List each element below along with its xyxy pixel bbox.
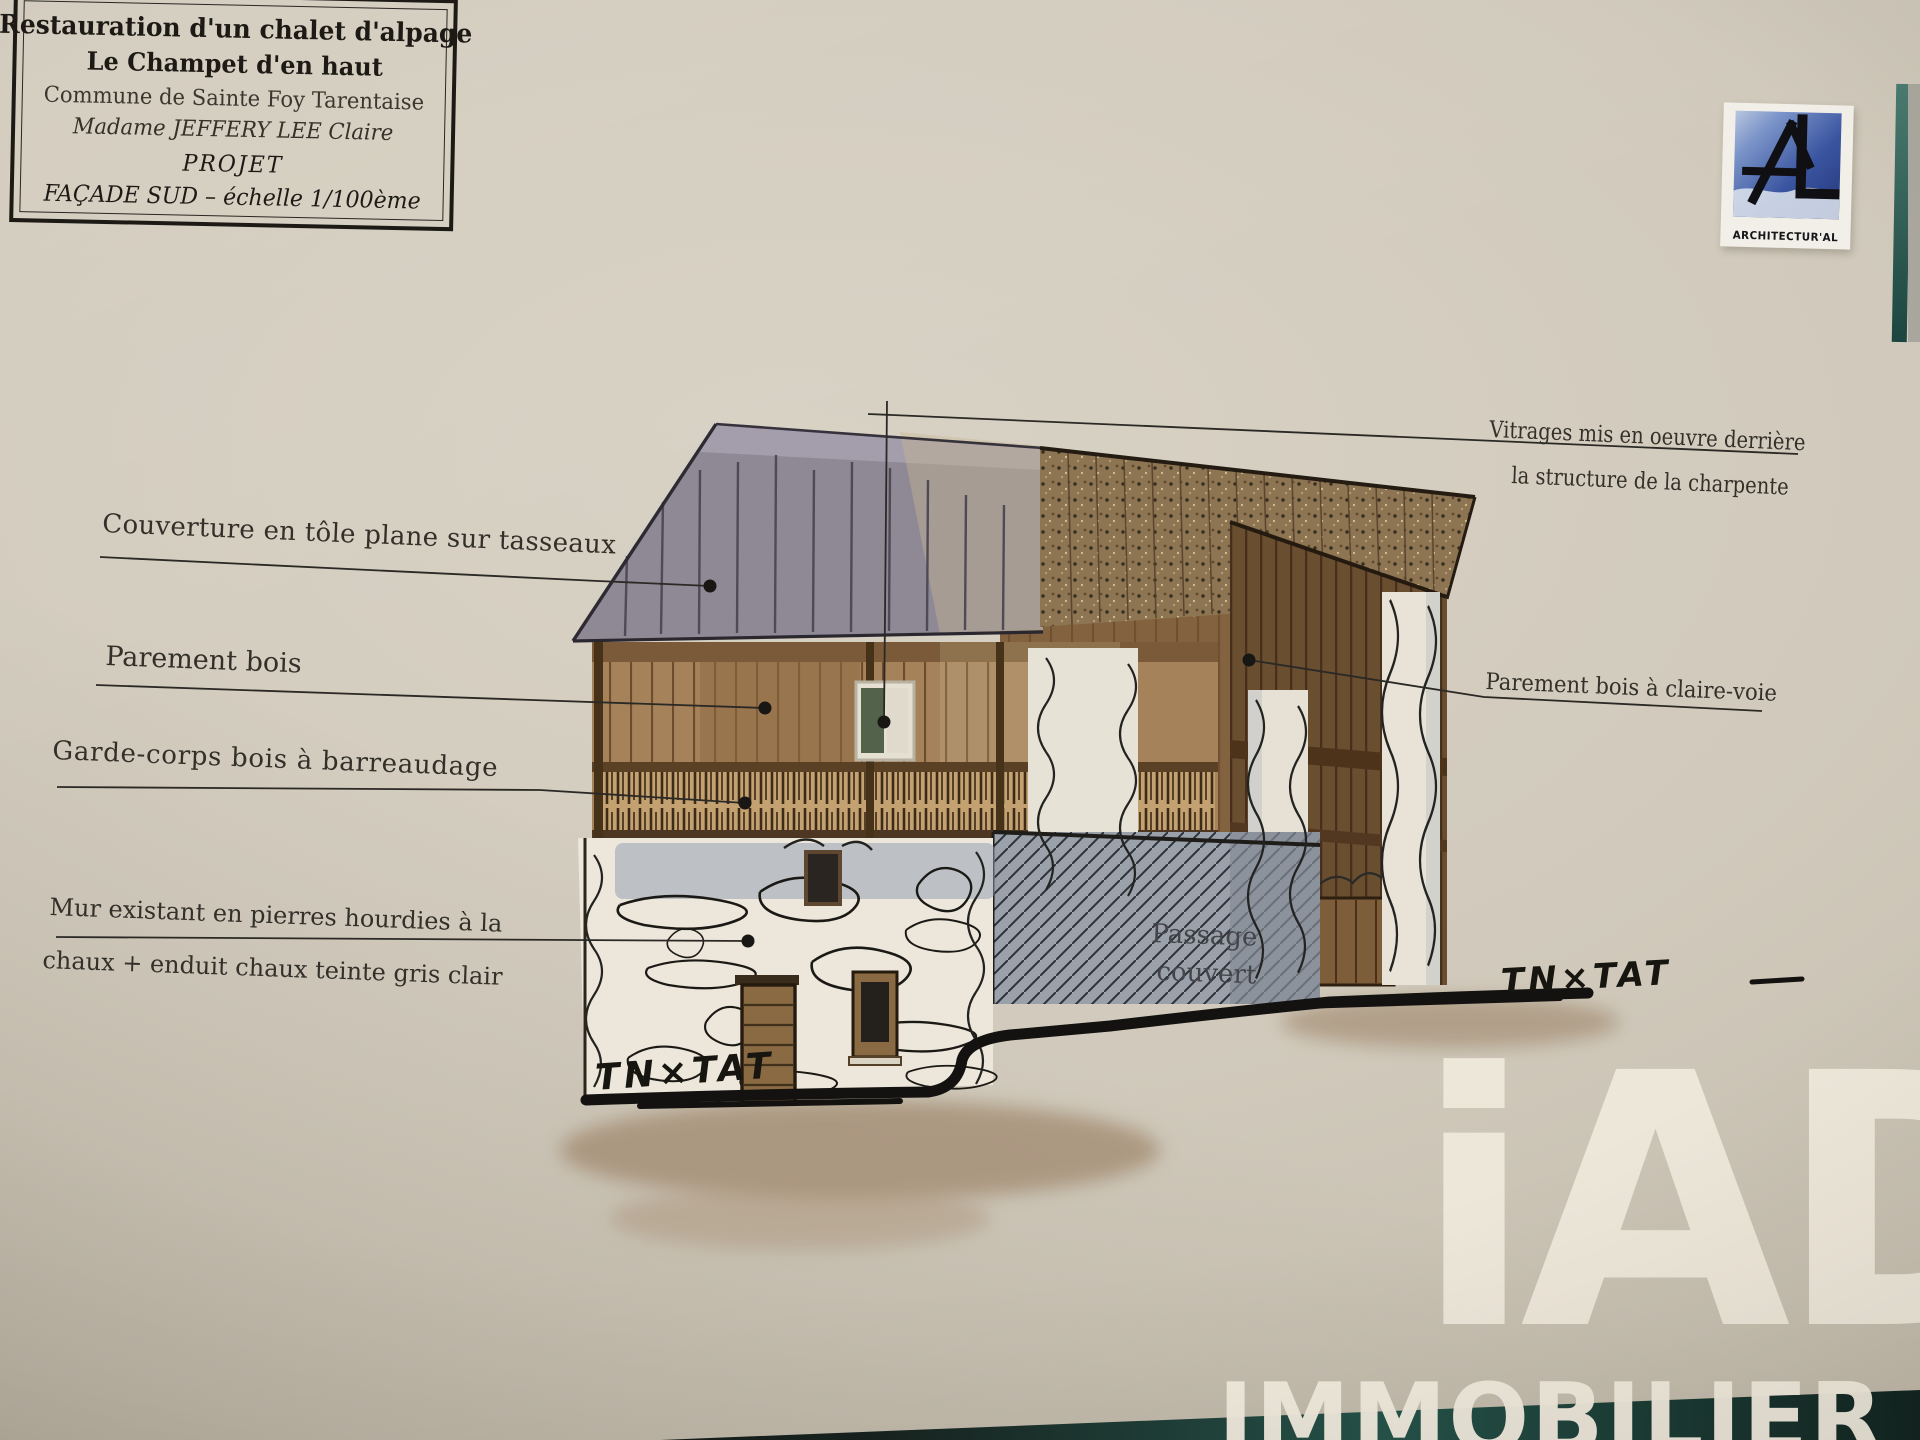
al-monogram (1733, 111, 1842, 220)
photographed-plan-sheet: Restauration d'un chalet d'alpage Le Cha… (0, 0, 1920, 1440)
project-title: Restauration d'un chalet d'alpage (0, 9, 472, 51)
phase-label: PROJET (182, 149, 283, 180)
paper-edge-right (1908, 84, 1920, 342)
architect-logo-sticker: ARCHITECTUR'AL (1720, 102, 1854, 249)
commune: Commune de Sainte Foy Tarentaise (43, 81, 424, 116)
iad-watermark-logo: iAD (1414, 1028, 1920, 1378)
iad-watermark-caption: IMMOBILIER (1218, 1372, 1885, 1440)
ground-floor-window (849, 972, 901, 1065)
label-passage-line1: Passage (1151, 919, 1258, 953)
drawing-title-scale: FAÇADE SUD – échelle 1/100ème (43, 179, 421, 216)
ground-dash (1752, 979, 1802, 982)
architect-logo-square (1733, 111, 1842, 220)
architect-name: ARCHITECTUR'AL (1724, 228, 1846, 244)
left-roof-metal (573, 424, 1043, 641)
site-name: Le Champet d'en haut (86, 45, 383, 82)
balcony-level (592, 642, 1218, 844)
client-name: Madame JEFFERY LEE Claire (73, 114, 394, 148)
title-block-inner-border: Restauration d'un chalet d'alpage Le Cha… (19, 0, 447, 221)
label-passage-line2: couvert (1156, 957, 1257, 990)
title-block: Restauration d'un chalet d'alpage Le Cha… (9, 0, 458, 231)
